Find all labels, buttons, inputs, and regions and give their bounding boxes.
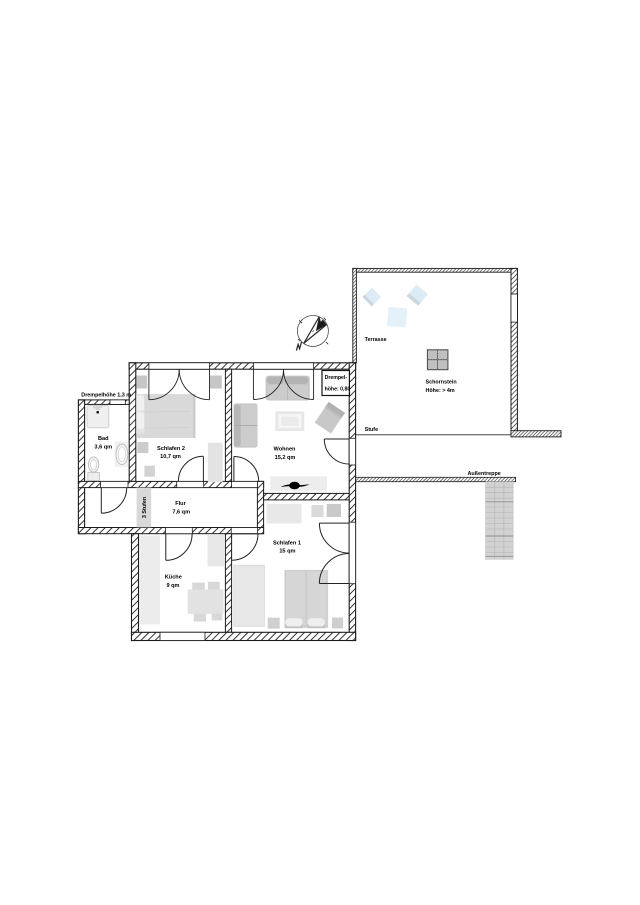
- svg-text:Höhe: > 4m: Höhe: > 4m: [426, 388, 455, 394]
- svg-text:15 qm: 15 qm: [279, 549, 295, 555]
- svg-text:Bad: Bad: [98, 436, 109, 442]
- svg-text:15,2 qm: 15,2 qm: [275, 455, 296, 461]
- svg-text:Drempelhöhe 1,3 m: Drempelhöhe 1,3 m: [81, 393, 131, 399]
- svg-text:Küche: Küche: [165, 575, 182, 581]
- svg-text:10,7 qm: 10,7 qm: [160, 454, 181, 460]
- svg-text:Terrasse: Terrasse: [365, 337, 387, 343]
- svg-text:Schlafen 1: Schlafen 1: [273, 540, 301, 546]
- svg-text:Schlafen 2: Schlafen 2: [157, 446, 185, 452]
- svg-text:Wohnen: Wohnen: [274, 446, 297, 452]
- svg-text:Flur: Flur: [175, 501, 186, 507]
- svg-text:9 qm: 9 qm: [166, 583, 179, 589]
- svg-text:7,6 qm: 7,6 qm: [172, 509, 190, 515]
- svg-text:höhe: 0,80: höhe: 0,80: [325, 386, 351, 392]
- svg-text:3,6 qm: 3,6 qm: [94, 445, 112, 451]
- svg-text:3 Stufen: 3 Stufen: [142, 497, 148, 518]
- svg-text:Stufe: Stufe: [365, 427, 378, 433]
- svg-text:Schornstein: Schornstein: [426, 379, 457, 385]
- svg-text:Drempel-: Drempel-: [325, 375, 348, 381]
- svg-text:Außentreppe: Außentreppe: [468, 471, 501, 477]
